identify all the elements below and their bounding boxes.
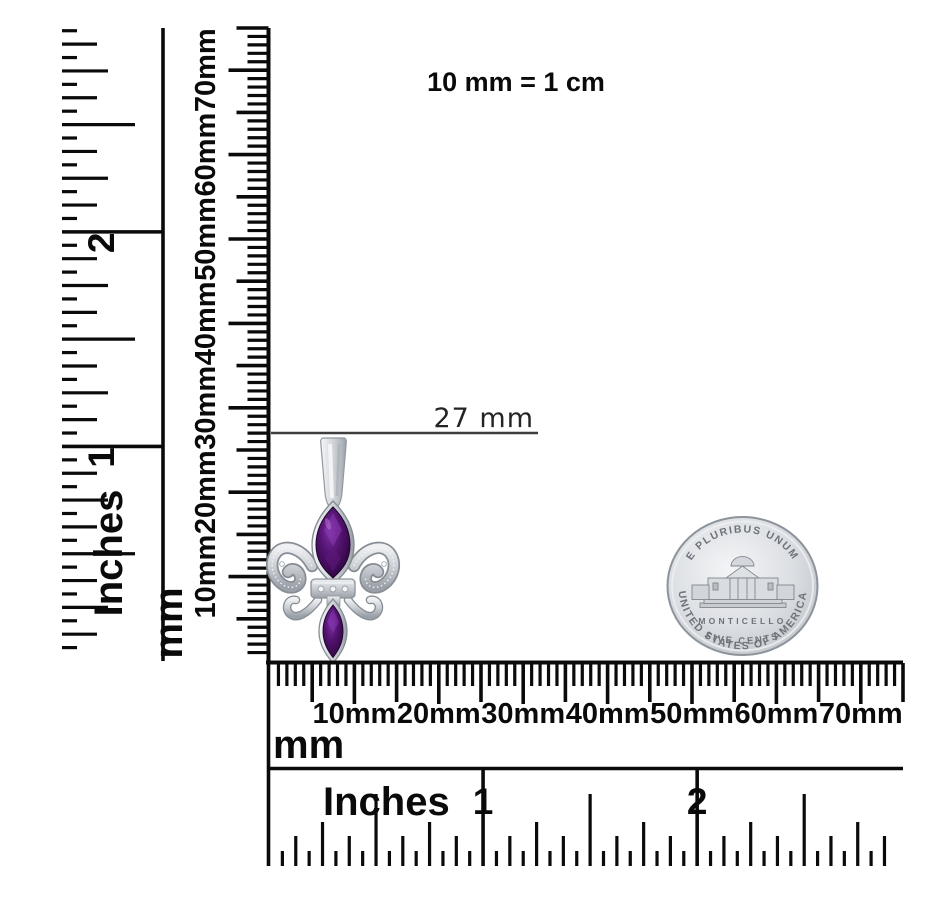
product-sizing-image: 12 Inches 10mm20mm30mm40mm50mm60mm70mm m…	[0, 0, 950, 903]
horizontal-inches-ruler: 12 Inches	[282, 770, 884, 866]
bail-highlight	[330, 444, 332, 498]
mm-number: 30mm	[190, 366, 222, 450]
mm-number: 60mm	[734, 698, 818, 730]
building-window-right	[768, 583, 773, 590]
upper-marquise-stone	[312, 501, 354, 584]
band-diamond-2	[330, 586, 336, 592]
vertical-mm-labels: 10mm20mm30mm40mm50mm60mm70mm	[190, 28, 222, 618]
nickel-coin: E PLURIBUS UNUM MONTICELLO FIVE CENTS UN…	[668, 517, 818, 655]
mm-number: 70mm	[819, 698, 903, 730]
inch-number: 1	[473, 781, 494, 822]
mm-number: 50mm	[190, 197, 222, 281]
mm-number: 20mm	[397, 698, 481, 730]
horizontal-inches-unit-label: Inches	[323, 780, 450, 824]
inch-number: 1	[81, 447, 122, 468]
measurement-scene: 12 Inches 10mm20mm30mm40mm50mm60mm70mm m…	[0, 0, 950, 903]
horizontal-mm-labels: 10mm20mm30mm40mm50mm60mm70mm	[312, 698, 902, 730]
left-arm-diamond-accent	[280, 562, 285, 567]
horizontal-mm-ruler: 10mm20mm30mm40mm50mm60mm70mm mm	[266, 661, 903, 866]
lower-right-curl	[348, 600, 379, 616]
pendant-center-band	[311, 579, 355, 598]
vertical-mm-ticks	[229, 28, 269, 653]
band-diamond-1	[318, 586, 324, 592]
inch-number: 2	[687, 781, 708, 822]
pendant-bail	[321, 438, 347, 509]
vertical-inches-ruler: 12 Inches	[62, 28, 163, 661]
mm-number: 30mm	[481, 698, 565, 730]
horizontal-mm-unit-label: mm	[273, 723, 344, 767]
mm-number: 40mm	[566, 698, 650, 730]
mm-number: 10mm	[190, 535, 222, 619]
mm-number: 50mm	[650, 698, 734, 730]
inch-number: 2	[81, 233, 122, 254]
vertical-mm-unit-label: mm	[147, 587, 191, 658]
scale-note: 10 mm = 1 cm	[427, 67, 605, 97]
building-right-wing	[777, 585, 794, 600]
coin-monticello-label: MONTICELLO	[698, 616, 786, 626]
lower-left-curl	[287, 600, 318, 616]
vertical-mm-ruler: 10mm20mm30mm40mm50mm60mm70mm mm	[147, 28, 269, 661]
fleur-de-lis-pendant	[272, 438, 394, 663]
lower-marquise-stone	[319, 596, 347, 663]
mm-number: 40mm	[190, 281, 222, 365]
right-arm-diamond-accent	[382, 562, 387, 567]
building-left-wing	[692, 585, 709, 600]
band-diamond-3	[342, 586, 348, 592]
mm-number: 70mm	[190, 28, 222, 112]
size-annotation: 27 mm	[271, 403, 538, 434]
vertical-inches-unit-label: Inches	[87, 490, 131, 617]
building-facade	[708, 578, 778, 600]
mm-number: 60mm	[190, 113, 222, 197]
size-annotation-label: 27 mm	[433, 403, 534, 434]
building-window-left	[713, 583, 718, 590]
mm-number: 20mm	[190, 450, 222, 534]
vertical-inches-labels: 12	[81, 233, 122, 468]
